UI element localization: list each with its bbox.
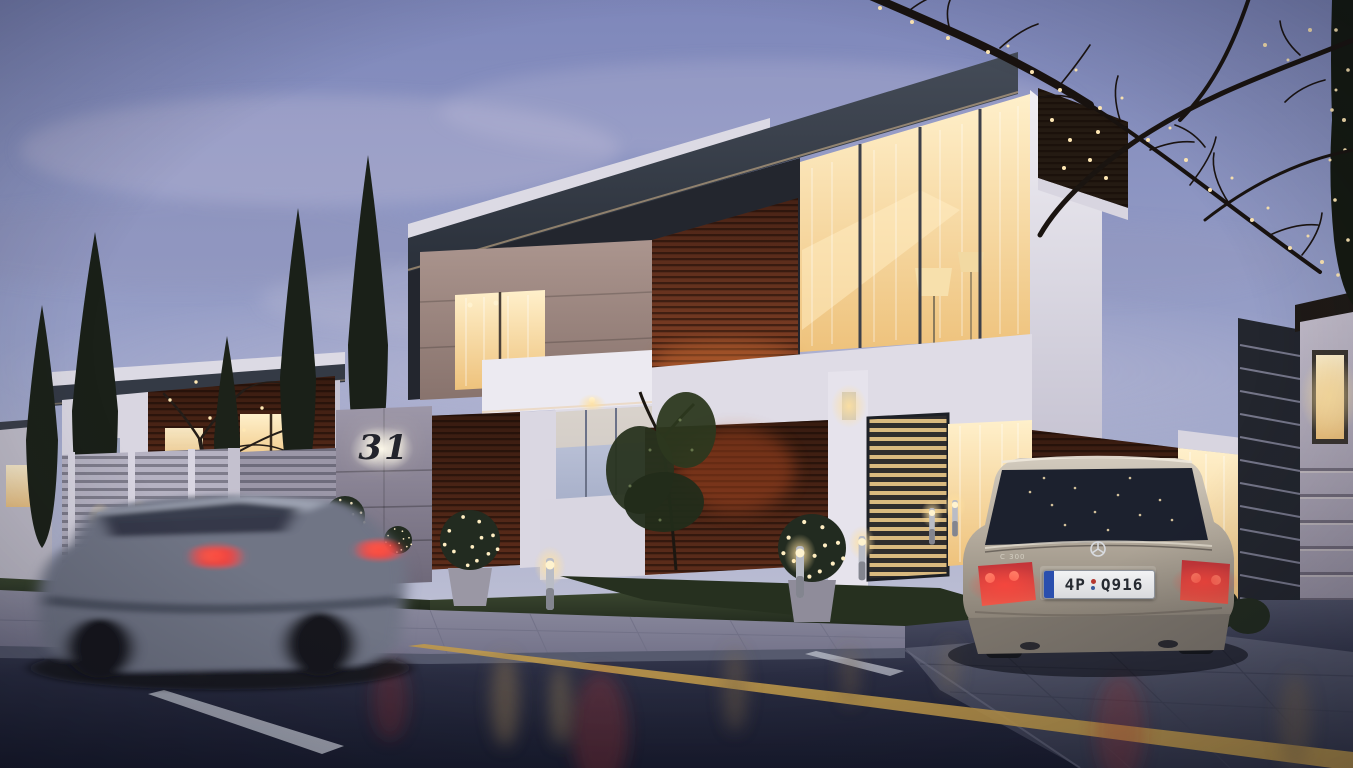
license-plate: 4P Q916 bbox=[1043, 570, 1155, 599]
house-number: 31 bbox=[336, 426, 432, 470]
vignette bbox=[0, 0, 1353, 768]
plate-seal-blue bbox=[1091, 586, 1095, 590]
plate-seals bbox=[1091, 579, 1096, 590]
plate-suffix: Q916 bbox=[1101, 575, 1144, 594]
car-model-badge: C 300 bbox=[1000, 553, 1025, 561]
plate-registration: 4P Q916 bbox=[1054, 571, 1154, 598]
plate-seal-red bbox=[1091, 579, 1096, 584]
plate-eu-band bbox=[1044, 571, 1054, 598]
scene-canvas bbox=[0, 0, 1353, 768]
scene-architectural-rendering: 31 4P Q916 C 300 bbox=[0, 0, 1353, 768]
plate-prefix: 4P bbox=[1065, 575, 1086, 594]
